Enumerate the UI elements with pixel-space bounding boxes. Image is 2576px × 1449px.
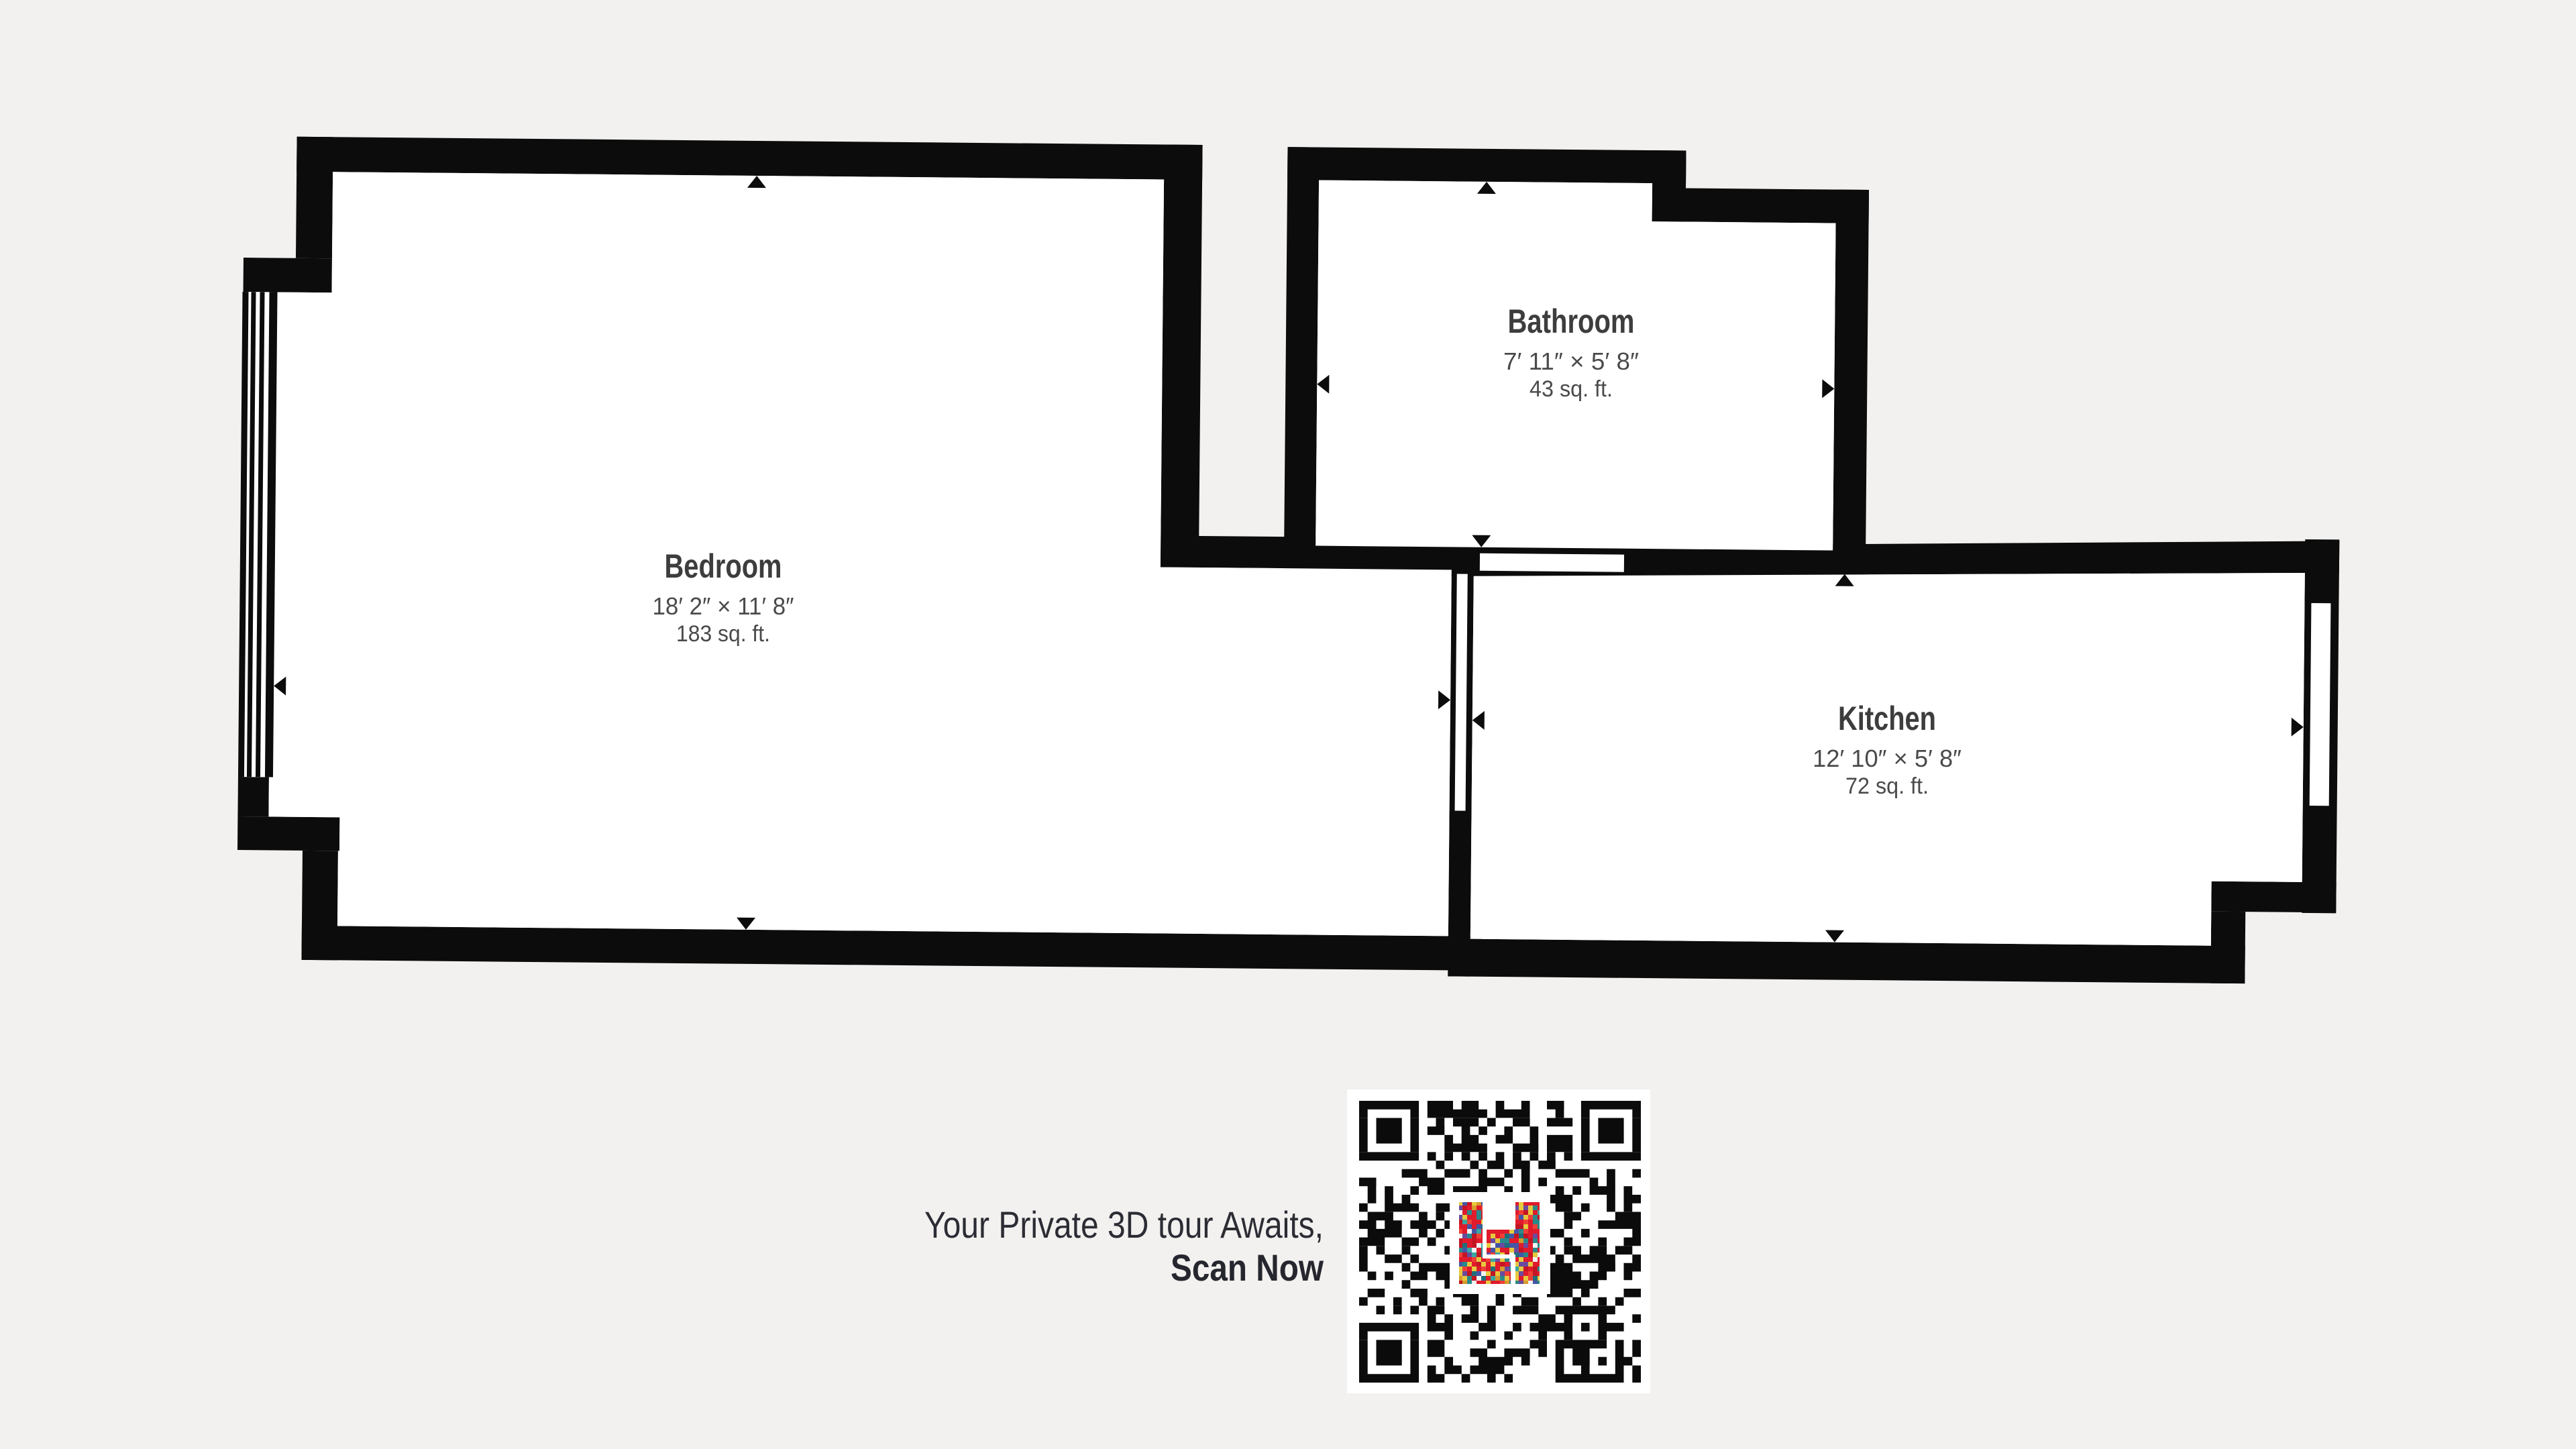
svg-text:Scan Now: Scan Now [1171, 1246, 1324, 1289]
svg-text:Bathroom: Bathroom [1508, 303, 1635, 340]
svg-text:18′ 2″ × 11′ 8″: 18′ 2″ × 11′ 8″ [653, 592, 794, 620]
svg-text:43 sq. ft.: 43 sq. ft. [1529, 376, 1613, 402]
svg-text:183 sq. ft.: 183 sq. ft. [676, 621, 770, 647]
svg-text:Bedroom: Bedroom [665, 547, 782, 585]
svg-text:Your Private 3D tour Awaits,: Your Private 3D tour Awaits, [924, 1203, 1324, 1246]
svg-text:12′ 10″ × 5′ 8″: 12′ 10″ × 5′ 8″ [1813, 745, 1962, 772]
svg-text:7′ 11″ × 5′ 8″: 7′ 11″ × 5′ 8″ [1503, 347, 1639, 375]
svg-text:Kitchen: Kitchen [1838, 700, 1936, 737]
svg-text:72 sq. ft.: 72 sq. ft. [1845, 773, 1929, 799]
